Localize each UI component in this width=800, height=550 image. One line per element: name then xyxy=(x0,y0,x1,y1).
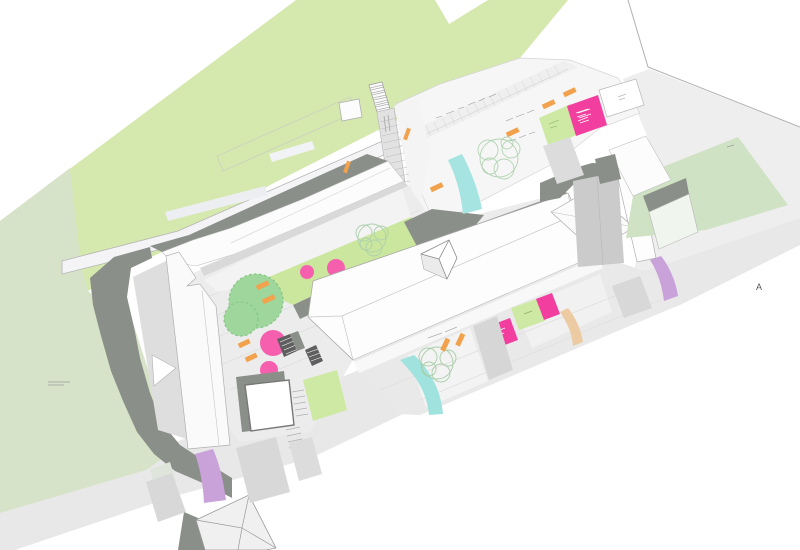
svg-text:A: A xyxy=(756,282,762,292)
